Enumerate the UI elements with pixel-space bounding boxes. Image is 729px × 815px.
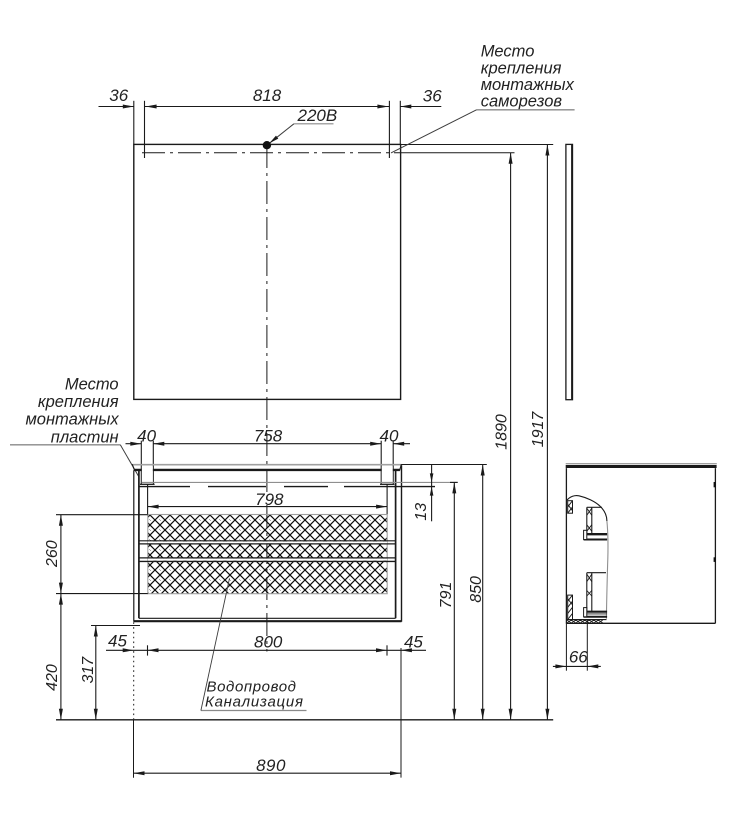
svg-text:Место: Место xyxy=(481,43,535,61)
svg-text:45: 45 xyxy=(404,633,423,652)
svg-text:монтажных: монтажных xyxy=(481,76,575,94)
svg-text:260: 260 xyxy=(44,540,61,568)
svg-text:монтажных: монтажных xyxy=(25,411,119,429)
svg-text:850: 850 xyxy=(468,576,485,603)
svg-text:1890: 1890 xyxy=(494,414,511,450)
svg-text:66: 66 xyxy=(569,648,588,667)
svg-text:40: 40 xyxy=(380,427,399,446)
svg-text:Место: Место xyxy=(65,375,119,393)
svg-text:40: 40 xyxy=(137,427,156,446)
svg-text:пластин: пластин xyxy=(51,428,119,446)
svg-text:1917: 1917 xyxy=(530,411,547,448)
svg-text:890: 890 xyxy=(256,756,286,775)
svg-text:798: 798 xyxy=(255,490,284,509)
svg-text:758: 758 xyxy=(254,427,283,446)
svg-text:36: 36 xyxy=(109,86,128,105)
svg-text:Канализация: Канализация xyxy=(205,693,304,710)
svg-text:36: 36 xyxy=(423,86,442,105)
svg-text:крепления: крепления xyxy=(38,393,119,411)
svg-text:крепления: крепления xyxy=(481,59,562,77)
svg-text:818: 818 xyxy=(253,86,282,105)
svg-text:саморезов: саморезов xyxy=(481,93,563,111)
svg-text:13: 13 xyxy=(413,503,430,521)
svg-text:220В: 220В xyxy=(297,106,338,125)
svg-text:791: 791 xyxy=(438,582,455,609)
svg-text:420: 420 xyxy=(44,664,61,691)
svg-text:800: 800 xyxy=(254,633,283,652)
svg-text:45: 45 xyxy=(108,632,127,651)
svg-text:317: 317 xyxy=(80,656,97,684)
